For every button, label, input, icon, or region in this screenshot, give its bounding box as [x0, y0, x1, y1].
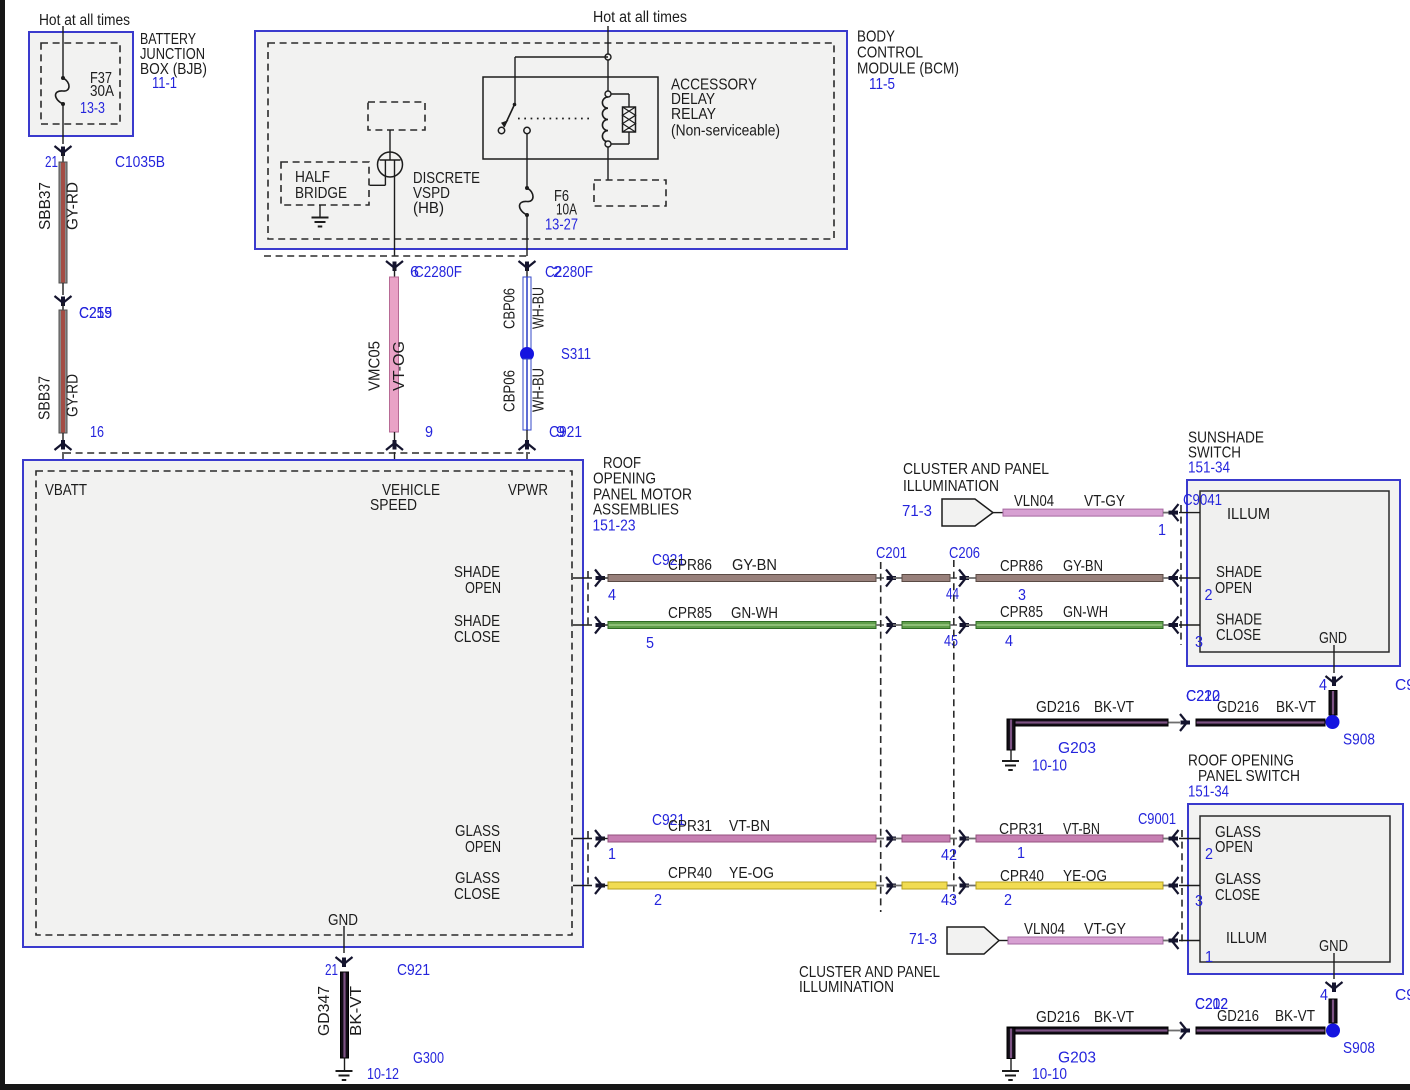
svg-text:GD216: GD216 [1217, 699, 1259, 716]
svg-text:BK-VT: BK-VT [1275, 1008, 1315, 1025]
svg-text:OPEN: OPEN [1215, 839, 1253, 856]
svg-text:BRIDGE: BRIDGE [295, 185, 347, 202]
svg-text:C206: C206 [949, 545, 980, 562]
svg-text:Hot at all times: Hot at all times [593, 9, 687, 26]
svg-text:2: 2 [1205, 587, 1213, 604]
svg-text:16: 16 [90, 424, 104, 441]
svg-text:C259: C259 [79, 305, 112, 322]
svg-text:VLN04: VLN04 [1014, 493, 1054, 510]
svg-text:SBB37: SBB37 [37, 376, 54, 420]
svg-text:CBP06: CBP06 [502, 288, 519, 329]
svg-text:VT-OG: VT-OG [391, 341, 408, 391]
svg-text:10-10: 10-10 [1032, 1066, 1067, 1083]
svg-text:VT-BN: VT-BN [729, 818, 770, 835]
svg-text:71-3: 71-3 [909, 931, 937, 948]
svg-text:GY-RD: GY-RD [65, 374, 82, 417]
svg-text:C220: C220 [1186, 688, 1220, 705]
svg-text:CONTROL: CONTROL [857, 45, 923, 62]
svg-text:HALF: HALF [295, 169, 330, 186]
svg-text:SHADE: SHADE [1216, 612, 1262, 629]
svg-text:42: 42 [941, 847, 957, 864]
svg-text:G300: G300 [413, 1050, 444, 1067]
svg-text:CPR86: CPR86 [1000, 558, 1043, 575]
svg-text:ILLUM: ILLUM [1226, 930, 1267, 947]
svg-text:GND: GND [328, 912, 358, 929]
svg-text:4: 4 [1320, 987, 1328, 1004]
svg-text:VT-BN: VT-BN [1063, 821, 1100, 838]
svg-text:OPEN: OPEN [465, 580, 501, 597]
svg-text:BK-VT: BK-VT [1094, 699, 1134, 716]
svg-text:BK-VT: BK-VT [1276, 699, 1316, 716]
svg-text:CBP06: CBP06 [502, 370, 519, 412]
svg-text:VBATT: VBATT [45, 482, 87, 499]
svg-text:CPR85: CPR85 [1000, 604, 1043, 621]
svg-text:9: 9 [556, 424, 565, 441]
svg-text:BK-VT: BK-VT [348, 985, 365, 1036]
svg-text:GD216: GD216 [1036, 699, 1080, 716]
svg-text:CPR86: CPR86 [668, 557, 712, 574]
svg-text:13-3: 13-3 [80, 100, 105, 117]
svg-text:OPEN: OPEN [465, 839, 501, 856]
svg-text:CPR31: CPR31 [999, 821, 1044, 838]
svg-text:GD347: GD347 [316, 986, 333, 1036]
svg-text:GY-BN: GY-BN [732, 557, 777, 574]
svg-text:21: 21 [325, 962, 338, 979]
svg-text:21: 21 [45, 154, 58, 171]
svg-text:4: 4 [1005, 633, 1013, 650]
svg-text:SPEED: SPEED [370, 497, 417, 514]
svg-text:C201: C201 [876, 545, 907, 562]
svg-text:2: 2 [553, 264, 562, 281]
svg-text:ILLUM: ILLUM [1227, 506, 1270, 523]
svg-text:OPENING: OPENING [593, 471, 656, 488]
svg-text:2: 2 [654, 892, 662, 909]
svg-text:CPR31: CPR31 [668, 818, 712, 835]
svg-text:3: 3 [1018, 587, 1026, 604]
svg-text:9: 9 [425, 424, 433, 441]
svg-text:BK-VT: BK-VT [1094, 1009, 1134, 1026]
svg-text:(HB): (HB) [413, 200, 444, 217]
svg-text:VPWR: VPWR [508, 482, 548, 499]
svg-text:C921: C921 [549, 424, 582, 441]
svg-text:44: 44 [946, 586, 959, 603]
svg-text:CLOSE: CLOSE [1215, 887, 1260, 904]
svg-text:ROOF OPENING: ROOF OPENING [1188, 753, 1294, 770]
svg-text:ASSEMBLIES: ASSEMBLIES [593, 502, 679, 519]
svg-text:GN-WH: GN-WH [731, 605, 778, 622]
svg-text:VT-GY: VT-GY [1084, 921, 1126, 938]
svg-text:1: 1 [1205, 949, 1213, 966]
svg-text:VLN04: VLN04 [1024, 921, 1065, 938]
svg-text:CLUSTER AND PANEL: CLUSTER AND PANEL [903, 461, 1049, 478]
svg-text:2: 2 [1205, 846, 1213, 863]
svg-text:VT-GY: VT-GY [1084, 493, 1125, 510]
svg-text:MODULE (BCM): MODULE (BCM) [857, 61, 959, 78]
svg-text:C9041: C9041 [1183, 492, 1222, 509]
svg-text:C212: C212 [1195, 996, 1228, 1013]
svg-text:GLASS: GLASS [455, 823, 500, 840]
svg-text:GLASS: GLASS [455, 870, 500, 887]
svg-text:1: 1 [1017, 845, 1025, 862]
svg-text:PANEL SWITCH: PANEL SWITCH [1198, 768, 1300, 785]
svg-text:YE-OG: YE-OG [729, 865, 774, 882]
svg-text:71-3: 71-3 [902, 503, 932, 520]
svg-text:1: 1 [608, 846, 616, 863]
svg-text:11-5: 11-5 [869, 76, 895, 93]
svg-text:151-23: 151-23 [593, 518, 636, 535]
svg-text:S908: S908 [1343, 1040, 1375, 1057]
svg-text:CPR40: CPR40 [668, 865, 712, 882]
svg-text:3: 3 [1195, 634, 1203, 651]
svg-text:C2280F: C2280F [414, 264, 462, 281]
svg-text:11-1: 11-1 [152, 75, 177, 92]
svg-text:(Non-serviceable): (Non-serviceable) [671, 123, 780, 140]
svg-text:BODY: BODY [857, 29, 895, 46]
svg-text:CLOSE: CLOSE [454, 886, 500, 903]
svg-text:S908: S908 [1343, 732, 1375, 749]
svg-text:4: 4 [608, 587, 616, 604]
svg-text:30A: 30A [90, 83, 115, 100]
svg-text:SHADE: SHADE [1216, 564, 1262, 581]
svg-text:CPR40: CPR40 [1000, 868, 1044, 885]
svg-text:SHADE: SHADE [454, 613, 500, 630]
svg-text:GY-BN: GY-BN [1063, 558, 1103, 575]
svg-text:G203: G203 [1058, 1050, 1096, 1067]
svg-text:C921: C921 [397, 962, 430, 979]
svg-text:S311: S311 [561, 346, 591, 363]
svg-text:RELAY: RELAY [671, 106, 716, 123]
svg-text:WH-BU: WH-BU [531, 368, 548, 412]
svg-text:13-27: 13-27 [545, 217, 578, 234]
svg-text:151-34: 151-34 [1188, 460, 1230, 477]
svg-text:CLOSE: CLOSE [1216, 627, 1261, 644]
svg-text:45: 45 [944, 633, 958, 650]
svg-text:VMC05: VMC05 [367, 341, 384, 391]
svg-text:C9: C9 [1395, 987, 1410, 1004]
svg-text:GN-WH: GN-WH [1063, 604, 1108, 621]
svg-text:CLOSE: CLOSE [454, 629, 500, 646]
svg-text:SBB37: SBB37 [37, 182, 54, 230]
svg-text:GY-RD: GY-RD [65, 182, 82, 230]
svg-text:10-12: 10-12 [367, 1066, 399, 1083]
svg-text:YE-OG: YE-OG [1063, 868, 1107, 885]
svg-text:OPEN: OPEN [1215, 580, 1252, 597]
svg-text:43: 43 [941, 892, 957, 909]
svg-text:SHADE: SHADE [454, 564, 500, 581]
svg-text:Hot at all times: Hot at all times [39, 12, 130, 29]
svg-text:ROOF: ROOF [603, 455, 641, 472]
svg-text:10-10: 10-10 [1032, 758, 1067, 775]
svg-text:G203: G203 [1058, 740, 1096, 757]
svg-text:GND: GND [1319, 630, 1347, 647]
svg-text:GND: GND [1319, 938, 1348, 955]
svg-text:ILLUMINATION: ILLUMINATION [799, 979, 894, 996]
svg-text:5: 5 [646, 635, 654, 652]
svg-text:GLASS: GLASS [1215, 871, 1261, 888]
svg-text:GD216: GD216 [1036, 1009, 1080, 1026]
svg-text:1: 1 [1158, 522, 1166, 539]
svg-text:ILLUMINATION: ILLUMINATION [903, 478, 999, 495]
svg-text:2: 2 [1004, 892, 1012, 909]
svg-text:C1035B: C1035B [115, 154, 165, 171]
svg-text:C9001: C9001 [1138, 811, 1176, 828]
svg-text:4: 4 [1319, 677, 1327, 694]
svg-text:C9: C9 [1395, 677, 1410, 694]
svg-text:3: 3 [1195, 893, 1203, 910]
svg-text:CPR85: CPR85 [668, 605, 712, 622]
svg-text:WH-BU: WH-BU [531, 287, 548, 329]
svg-text:151-34: 151-34 [1188, 784, 1229, 801]
